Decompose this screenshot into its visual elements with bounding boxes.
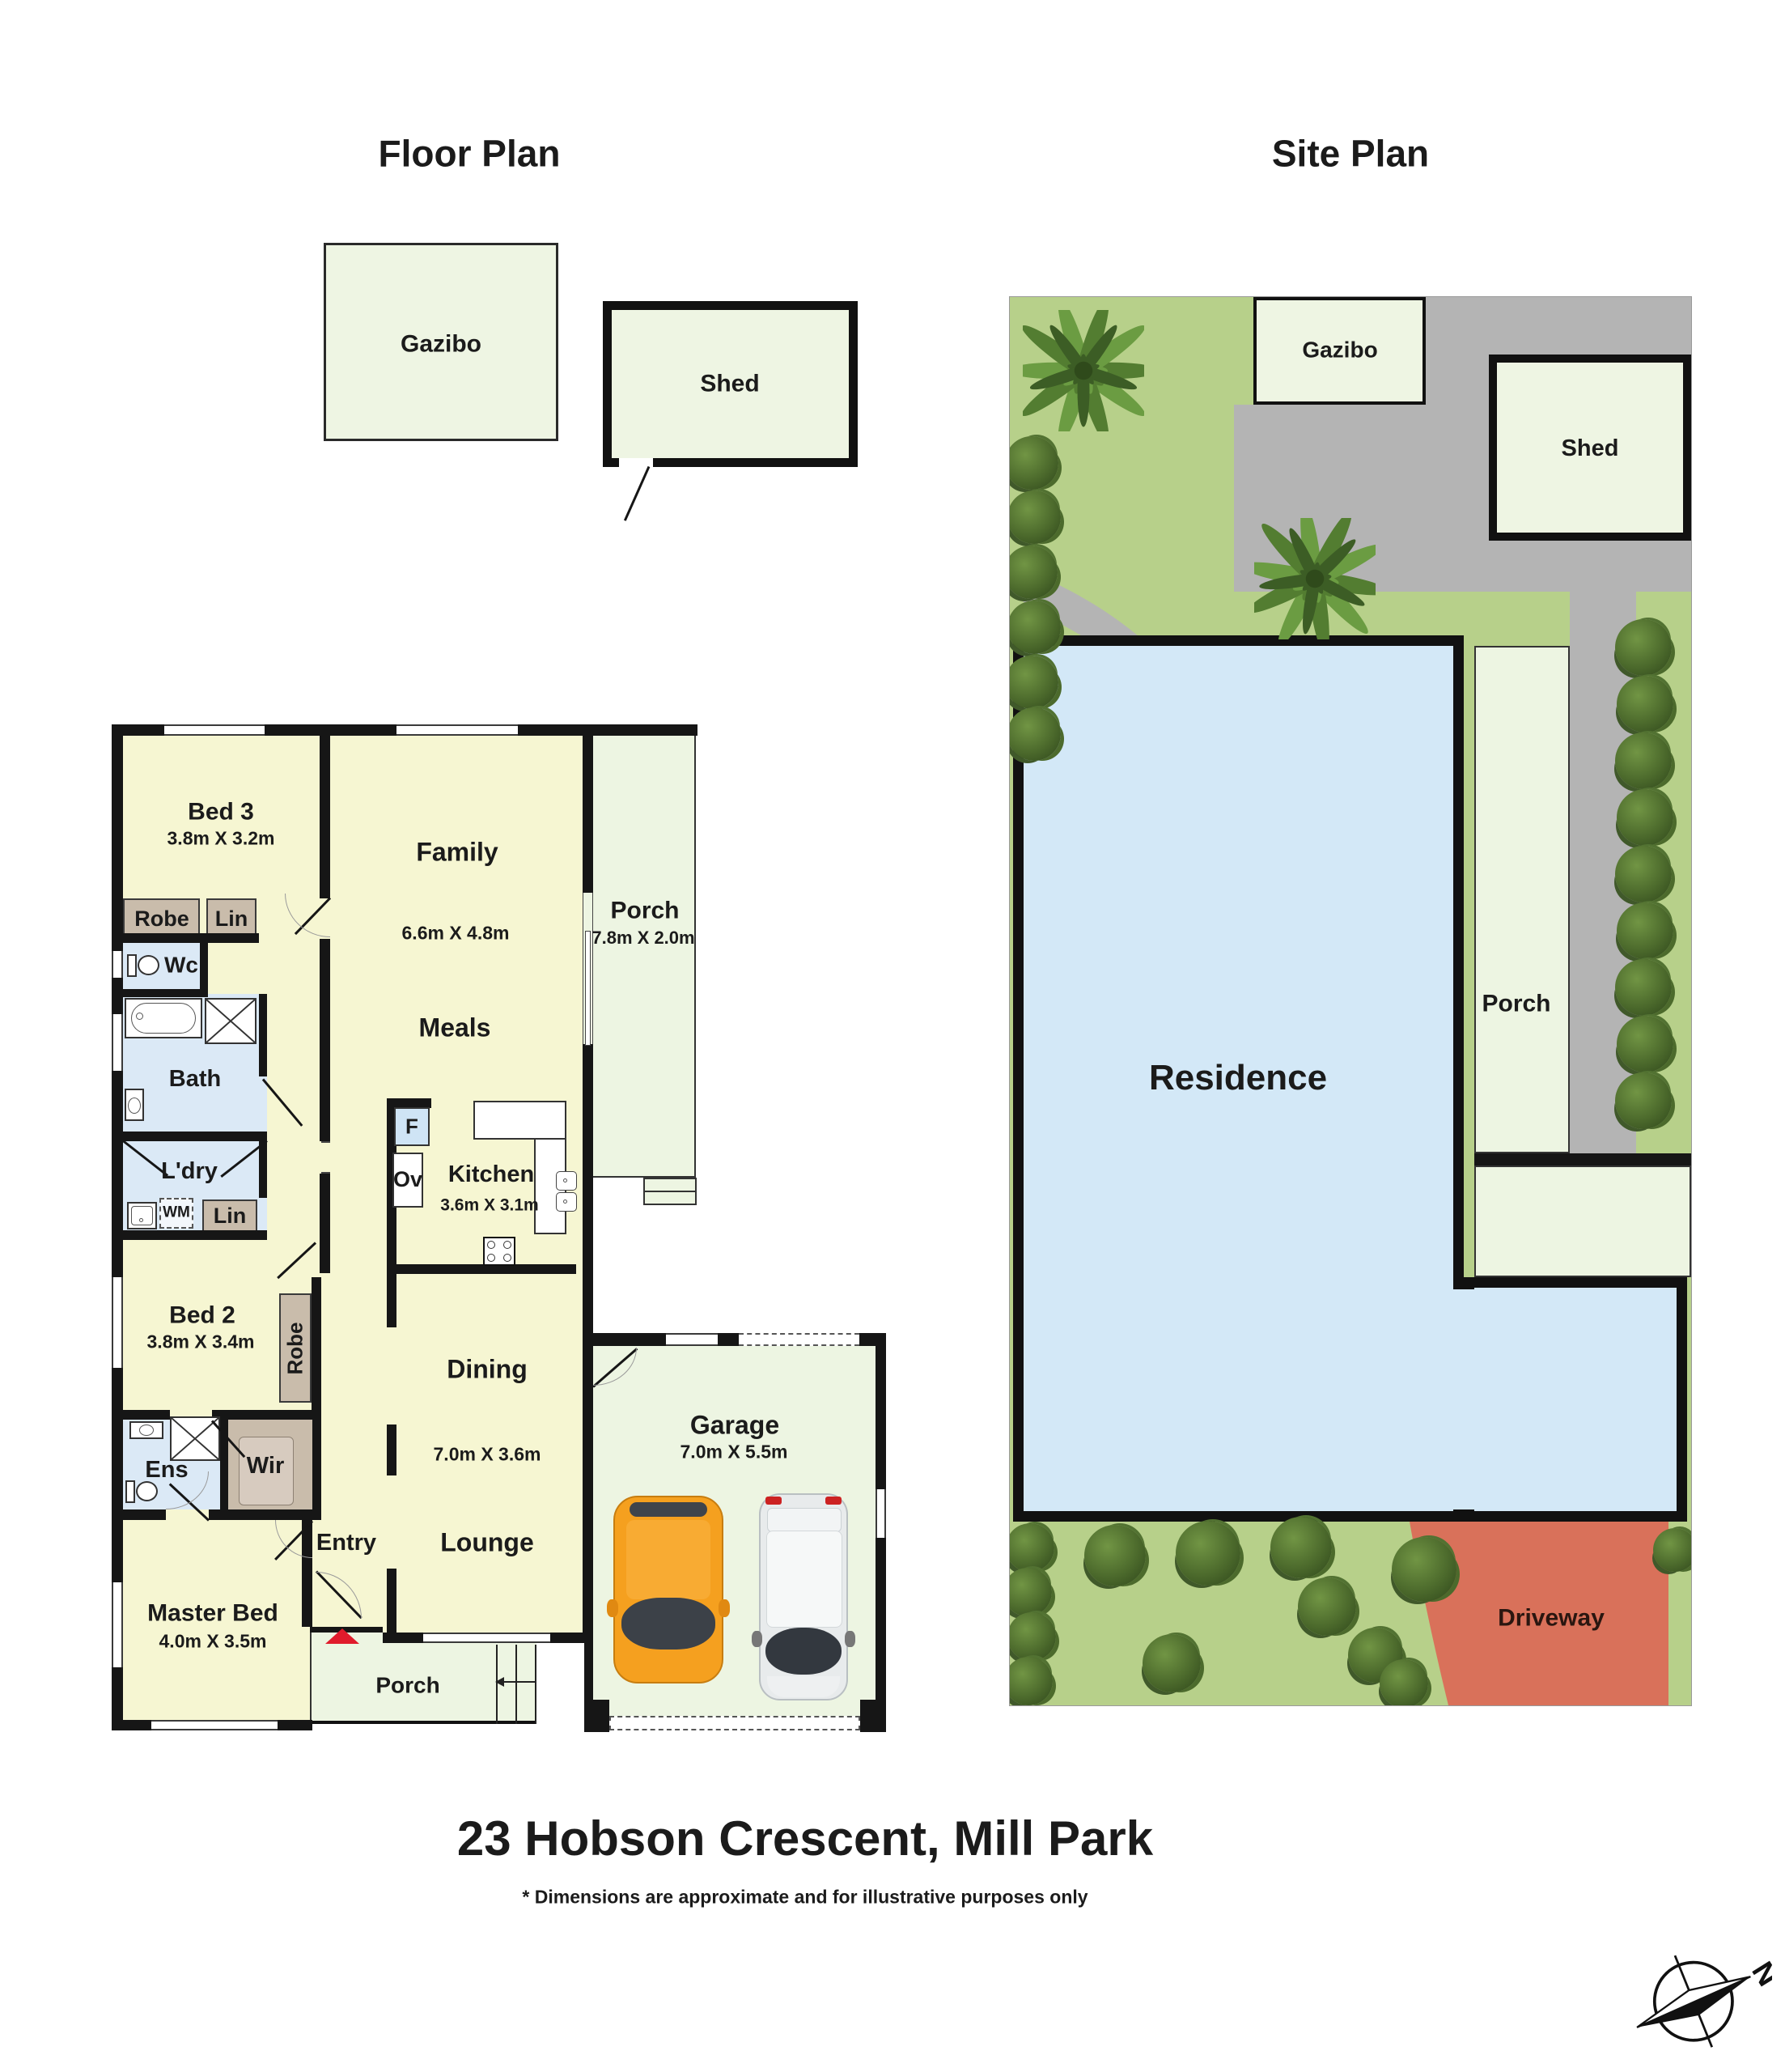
- sp-porch-label: Porch: [1482, 991, 1550, 1017]
- white-patch: [536, 1643, 585, 1726]
- entry-label: Entry: [316, 1531, 376, 1556]
- wm-label: WM: [163, 1205, 190, 1222]
- robe-label: Robe: [134, 907, 189, 932]
- site-plan: Gazibo Shed Residence Porch Driveway: [1010, 297, 1691, 1705]
- robe2-label: Robe: [283, 1323, 308, 1375]
- car-roof: [766, 1531, 842, 1628]
- wall-kitchen-bottom: [387, 1264, 576, 1274]
- car-rear-window: [630, 1502, 707, 1517]
- floorplan-page: Floor Plan Site Plan Gazibo Shed: [0, 0, 1785, 2072]
- garage-opening-dashed: [739, 1333, 859, 1346]
- step-line: [535, 1645, 536, 1724]
- wall-under-ens-b: [209, 1509, 312, 1520]
- wall-bath-laundry: [123, 1132, 267, 1141]
- ens-label: Ens: [145, 1458, 188, 1484]
- car-taillight: [825, 1497, 842, 1505]
- sp-porch-block: [1474, 1165, 1691, 1277]
- family-dims: 6.6m X 4.8m: [402, 923, 510, 943]
- dining-lounge-dims: 7.0m X 3.6m: [434, 1444, 541, 1464]
- tree: [1653, 1528, 1691, 1572]
- tree: [1010, 490, 1061, 544]
- car-roof: [626, 1520, 710, 1599]
- step-arrow-head: [495, 1677, 504, 1687]
- ens-basin: [139, 1424, 154, 1436]
- tree: [1617, 1016, 1673, 1072]
- tree: [1010, 601, 1061, 654]
- window: [112, 1014, 123, 1071]
- car-orange: [613, 1496, 723, 1683]
- sink-drain: [563, 1199, 567, 1204]
- lin-label: Lin: [215, 907, 248, 932]
- car-windshield: [765, 1628, 842, 1675]
- lounge-label: Lounge: [440, 1528, 534, 1556]
- wall-wir-right: [312, 1410, 321, 1520]
- sp-porch-column: [1474, 646, 1570, 1153]
- car-windshield: [621, 1598, 715, 1650]
- tree: [1380, 1659, 1428, 1705]
- tree: [1298, 1577, 1356, 1636]
- garage-label: Garage: [690, 1411, 779, 1439]
- tree: [1392, 1537, 1456, 1602]
- window: [164, 724, 265, 736]
- master-dims: 4.0m X 3.5m: [159, 1631, 267, 1651]
- tree: [1010, 707, 1061, 761]
- car-mirror: [845, 1631, 855, 1647]
- wall-hall-upper: [320, 939, 330, 1141]
- tree: [1615, 619, 1672, 676]
- wall-bed2-right: [312, 1277, 321, 1410]
- wall-bed2-bottom-a: [112, 1410, 170, 1420]
- wall-under-robe: [112, 933, 259, 943]
- entry-marker-triangle: [325, 1628, 359, 1644]
- window: [666, 1333, 718, 1346]
- sp-driveway-label: Driveway: [1498, 1605, 1605, 1632]
- dining-label: Dining: [447, 1355, 528, 1383]
- tree: [1084, 1525, 1146, 1586]
- car-trunk: [767, 1508, 842, 1532]
- fp-shed-label: Shed: [700, 371, 759, 397]
- trough-inner: [131, 1206, 153, 1225]
- sp-residence-label: Residence: [1149, 1059, 1327, 1098]
- car-taillight: [765, 1497, 782, 1505]
- car-mirror: [752, 1631, 762, 1647]
- wall-dining-c: [387, 1569, 396, 1633]
- tree: [1617, 902, 1673, 959]
- burner: [487, 1241, 495, 1249]
- sp-porch-wall: [1474, 1153, 1691, 1165]
- bath-label: Bath: [169, 1067, 221, 1093]
- opening-edge: [321, 1172, 330, 1174]
- tree: [1176, 1521, 1240, 1586]
- window: [112, 1277, 123, 1368]
- bed2-dims: 3.8m X 3.4m: [147, 1331, 255, 1352]
- tree: [1270, 1517, 1332, 1578]
- car-hood: [767, 1676, 840, 1697]
- wall-hall-lower: [320, 1174, 330, 1273]
- opening-edge: [321, 1141, 330, 1143]
- tree: [1617, 789, 1673, 846]
- wall-bed2-bottom-b: [212, 1410, 321, 1420]
- kitchen-bench: [473, 1101, 566, 1140]
- step-arrow-line: [503, 1681, 535, 1683]
- wall-under-ens-a: [112, 1509, 166, 1520]
- rear-porch-step-line: [643, 1191, 697, 1192]
- step-line: [515, 1645, 517, 1724]
- toilet-bowl: [138, 955, 159, 975]
- window: [423, 1633, 550, 1643]
- wall-under-laundry: [112, 1230, 267, 1240]
- burner: [503, 1254, 511, 1262]
- front-porch-label: Porch: [375, 1674, 439, 1699]
- disclaimer: * Dimensions are approximate and for ill…: [522, 1887, 1088, 1907]
- wall-bath-right: [259, 994, 267, 1076]
- wall-bed3: [320, 736, 330, 898]
- garage-dims: 7.0m X 5.5m: [681, 1441, 788, 1462]
- bed2-label: Bed 2: [169, 1302, 235, 1329]
- shed-door-leaf: [624, 466, 650, 521]
- wc-label: Wc: [164, 953, 198, 979]
- meals-label: Meals: [419, 1013, 491, 1042]
- floor-plan-title: Floor Plan: [379, 134, 561, 175]
- family-label: Family: [416, 838, 498, 866]
- site-plan-title: Site Plan: [1272, 134, 1429, 175]
- ens-toilet-cistern: [125, 1480, 135, 1503]
- wall-garage-corner-r: [860, 1700, 886, 1732]
- window: [396, 724, 518, 736]
- window: [151, 1720, 278, 1730]
- wall-left: [112, 724, 123, 1730]
- bathtub-drain: [136, 1013, 143, 1020]
- trough-drain: [139, 1218, 143, 1222]
- sp-residence-seam: [1453, 1289, 1480, 1509]
- bed3-dims: 3.8m X 3.2m: [167, 828, 275, 848]
- tree: [1143, 1634, 1201, 1692]
- rear-porch-label: Porch: [610, 898, 679, 924]
- fridge-label: F: [405, 1115, 418, 1139]
- kitchen-label: Kitchen: [448, 1162, 534, 1188]
- sink-drain: [563, 1178, 567, 1182]
- wall-dining-b: [387, 1424, 396, 1475]
- bed3-label: Bed 3: [188, 799, 254, 826]
- wall-garage-left-lower: [584, 1643, 593, 1700]
- palm-tree: [1023, 310, 1144, 431]
- burner: [487, 1254, 495, 1262]
- sp-gazibo-label: Gazibo: [1302, 338, 1377, 363]
- garage-door-dashed: [609, 1716, 860, 1730]
- wall-laundry-right: [259, 1141, 267, 1198]
- oven-label: Ov: [393, 1168, 422, 1192]
- wall-family-right: [583, 724, 593, 1643]
- tree: [1615, 732, 1672, 789]
- car-white: [759, 1493, 848, 1700]
- wall-under-wc: [123, 989, 208, 997]
- palm-tree: [1254, 518, 1376, 639]
- rear-porch-dims: 7.8m X 2.0m: [591, 928, 694, 948]
- lin2-label: Lin: [214, 1204, 247, 1229]
- kitchen-dims: 3.6m X 3.1m: [440, 1195, 538, 1214]
- wall-garage-corner-l: [584, 1700, 609, 1732]
- wir-label: Wir: [247, 1454, 284, 1480]
- rear-porch: [593, 736, 696, 1178]
- compass-icon: N: [1622, 1938, 1772, 2068]
- fp-gazibo-label: Gazibo: [401, 331, 481, 358]
- sp-residence-ext: [1464, 1277, 1687, 1522]
- window: [876, 1489, 886, 1538]
- shower: [205, 998, 257, 1044]
- tree: [1615, 846, 1672, 902]
- sliding-door: [585, 931, 591, 1046]
- master-label: Master Bed: [147, 1600, 278, 1627]
- compass-north-label: N: [1745, 1955, 1772, 1991]
- window: [112, 1582, 123, 1667]
- tree: [1615, 1072, 1672, 1129]
- car-mirror: [607, 1599, 618, 1617]
- tree: [1617, 676, 1673, 732]
- address-title: 23 Hobson Crescent, Mill Park: [457, 1812, 1153, 1866]
- ens-toilet-bowl: [136, 1481, 158, 1501]
- tree: [1615, 959, 1672, 1016]
- sp-shed-label: Shed: [1562, 436, 1619, 462]
- car-mirror: [719, 1599, 730, 1617]
- wall-wc-right: [200, 939, 208, 989]
- toilet-cistern: [127, 954, 137, 977]
- laundry-label: L'dry: [161, 1159, 218, 1185]
- vanity-basin: [128, 1098, 141, 1114]
- window: [112, 951, 123, 978]
- burner: [503, 1241, 511, 1249]
- wall-dining-a: [387, 1273, 396, 1327]
